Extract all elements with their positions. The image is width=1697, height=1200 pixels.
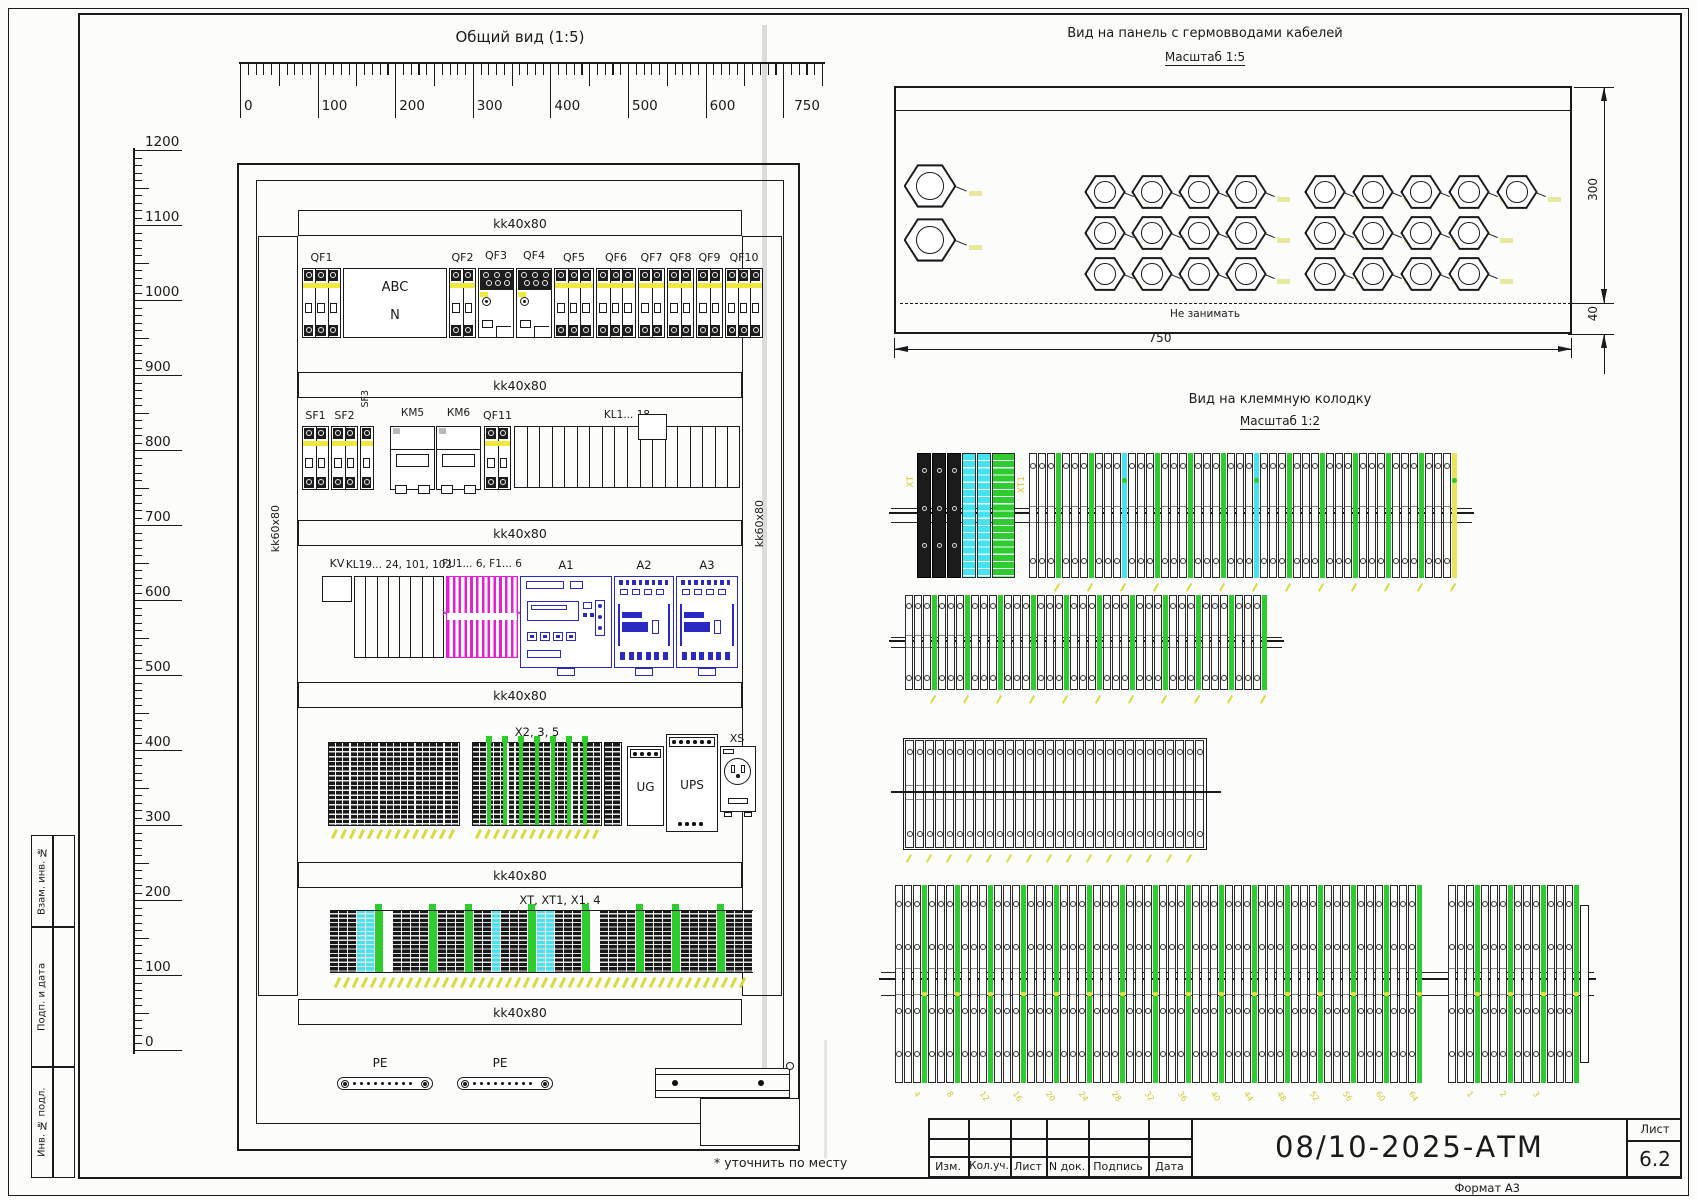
cell-line: [990, 635, 996, 636]
v-ruler-tick: [133, 480, 142, 481]
terminal-screw: [1254, 603, 1260, 609]
contactor-step: [534, 326, 549, 327]
gland-size-tag: [969, 245, 982, 250]
cell-line: [1147, 506, 1153, 507]
terminal-screw: [1277, 901, 1283, 907]
cell-line: [1236, 635, 1242, 636]
breaker-window: [317, 303, 324, 313]
terminal-cell: [416, 743, 422, 825]
terminal-screw: [1057, 831, 1063, 837]
cell-line: [1393, 522, 1399, 523]
terminal-screw: [907, 831, 913, 837]
cell-line: [1037, 994, 1043, 995]
v-ruler-tick: [133, 863, 149, 864]
cell-line: [1006, 785, 1013, 786]
v-ruler-tick: [133, 413, 149, 414]
cluster-separator: [1054, 885, 1059, 1083]
v-ruler-tick: [133, 593, 142, 594]
cell-line: [1094, 968, 1100, 969]
terminal-screw: [1202, 901, 1208, 907]
terminal-screw: [1023, 603, 1029, 609]
h-ruler-tick: [488, 62, 489, 75]
module-terminal-dot: [663, 652, 668, 660]
v-ruler-number: 0: [145, 1034, 189, 1051]
terminal-screw: [1235, 901, 1241, 907]
h-ruler-tick: [287, 62, 288, 75]
h-ruler-tick: [698, 62, 699, 75]
ug-terminal-dot: [640, 752, 644, 756]
screw-dot: [505, 272, 511, 278]
h-ruler-tick: [558, 62, 559, 75]
terminal-screw: [962, 901, 968, 907]
terminal-separator-green: [535, 743, 539, 825]
cell-line: [1038, 635, 1044, 636]
cell-line: [1155, 635, 1161, 636]
terminal-screw: [1435, 463, 1441, 469]
module-terminal-dot: [632, 580, 636, 585]
relay-window: [396, 454, 429, 467]
h-ruler-tick: [752, 62, 753, 75]
cell-line: [1103, 968, 1109, 969]
terminal-separator-green: [487, 743, 491, 825]
cell-line: [1292, 968, 1298, 969]
cell-line: [1096, 799, 1103, 800]
terminal-screw: [990, 603, 996, 609]
cell-line: [1138, 522, 1144, 523]
cluster-separator: [1262, 595, 1267, 690]
plc-bottom-bar: [527, 650, 561, 658]
fuse-mid-band: [447, 613, 517, 620]
v-ruler-tick: [133, 893, 142, 894]
terminal-screw: [1160, 901, 1166, 907]
separator-dot-green: [922, 925, 927, 930]
terminal-cell: [423, 743, 429, 825]
cell-line: [1178, 968, 1184, 969]
breaker-window: [683, 303, 691, 313]
terminal-screw: [1103, 1008, 1109, 1014]
cluster-separator: [1153, 885, 1158, 1083]
cell-line: [1279, 522, 1285, 523]
cell-line: [972, 647, 978, 648]
terminal-screw: [1067, 749, 1073, 755]
module-bracket: [732, 604, 734, 646]
cell-line: [1004, 994, 1010, 995]
v-ruler-tick: [133, 968, 142, 969]
cell-line: [1136, 785, 1143, 786]
h-ruler-number: 600: [710, 98, 750, 115]
separator-dot-green: [1353, 478, 1358, 483]
terminal-screw: [1204, 463, 1210, 469]
cluster-separator: [998, 595, 1003, 690]
terminal-screw: [1157, 831, 1163, 837]
cell-line: [947, 968, 953, 969]
terminal-screw: [1147, 831, 1153, 837]
separator-dot-yellow: [1186, 992, 1191, 997]
h-ruler-tick: [473, 62, 474, 118]
terminal-screw: [967, 831, 973, 837]
cell-line: [1106, 785, 1113, 786]
cell-line: [1235, 994, 1241, 995]
separator-dot-green: [932, 614, 937, 619]
terminal-screw: [1334, 901, 1340, 907]
cell-line: [1166, 799, 1173, 800]
v-ruler-tick: [133, 218, 142, 219]
module-terminal-dot: [699, 652, 704, 660]
cell-line: [990, 647, 996, 648]
comb-slot-divider: [677, 427, 678, 487]
v-ruler-tick: [133, 585, 142, 586]
separator-dot-green: [1541, 925, 1546, 930]
cell-line: [905, 968, 911, 969]
cell-line: [1186, 799, 1193, 800]
cell-line: [1079, 968, 1085, 969]
cell-line: [1070, 994, 1076, 995]
terminal-screw: [995, 1008, 1001, 1014]
cell-line: [1138, 506, 1144, 507]
ups-terminal-dot: [672, 740, 676, 744]
terminal-screw: [1409, 901, 1415, 907]
screw-dot: [600, 272, 606, 278]
plc-led: [590, 613, 594, 617]
comb-slot-divider: [690, 427, 691, 487]
cell-line: [1047, 635, 1053, 636]
cell-line: [1491, 968, 1497, 969]
terminal-screw: [1117, 831, 1123, 837]
terminal-screw: [1023, 675, 1029, 681]
terminal-screw: [938, 1008, 944, 1014]
plc-led: [583, 613, 587, 617]
cell-line: [1212, 635, 1218, 636]
h-ruler-tick: [721, 62, 722, 75]
ups-terminal-dot: [678, 822, 682, 826]
comb-slot-divider: [577, 427, 578, 487]
terminal-screw: [1178, 901, 1184, 907]
stamp-label-inv: Инв. № подл.: [34, 1068, 50, 1177]
cell-line: [905, 994, 911, 995]
cell-line: [1096, 506, 1102, 507]
cell-line: [1491, 994, 1497, 995]
terminal-screw: [1014, 603, 1020, 609]
pe-bus-hole: [515, 1082, 518, 1085]
plc-top-bar: [526, 581, 564, 589]
ext-line: [1568, 334, 1614, 335]
separator-dot-green: [1252, 925, 1257, 930]
v-ruler-tick: [133, 735, 142, 736]
cell-line: [1056, 785, 1063, 786]
v-ruler-tick: [133, 818, 142, 819]
cell-line: [1036, 799, 1043, 800]
cluster-separator: [1120, 885, 1125, 1083]
breaker-window: [570, 303, 578, 313]
socket-face: [724, 758, 751, 785]
plc-aux-cell: [583, 602, 592, 609]
terminal-screw: [896, 1008, 902, 1014]
terminal-screw: [1548, 901, 1554, 907]
gland-size-tag: [1277, 279, 1290, 284]
neutral-distribution-box: [343, 268, 447, 338]
separator-dot-yellow: [1318, 992, 1323, 997]
cell-line: [1343, 968, 1349, 969]
pe-bus-hole: [529, 1082, 532, 1085]
dim-300-label: 300: [1586, 178, 1600, 201]
terminal-screw: [1146, 603, 1152, 609]
v-ruler-tick: [133, 645, 142, 646]
v-ruler-tick: [133, 248, 142, 249]
terminal-screw: [929, 1008, 935, 1014]
breaker-window: [612, 303, 620, 313]
separator-dot-green: [988, 925, 993, 930]
terminal-screw: [1087, 831, 1093, 837]
v-ruler-tick: [133, 743, 142, 744]
separator-dot-green: [1417, 925, 1422, 930]
terminal-screw: [1079, 1008, 1085, 1014]
terminal-screw: [1261, 463, 1267, 469]
cell-line: [1268, 968, 1274, 969]
terminal-screw: [1037, 831, 1043, 837]
cell-line: [956, 785, 963, 786]
cell-line: [1367, 994, 1373, 995]
cell-line: [1334, 994, 1340, 995]
terminal-screw: [1360, 558, 1366, 564]
component-label: SF3: [360, 390, 371, 408]
terminal-screw: [1254, 675, 1260, 681]
cluster-separator: [1541, 885, 1546, 1083]
tb-col-list: Лист: [1010, 1160, 1046, 1173]
cell-line: [971, 968, 977, 969]
terminal-screw: [1080, 603, 1086, 609]
terminal-screw: [1268, 901, 1274, 907]
cell-line: [1458, 968, 1464, 969]
breaker-window: [582, 303, 590, 313]
plc-connector-pin: [598, 626, 602, 630]
terminal-cell-g: [672, 910, 680, 972]
terminal-screw: [1107, 831, 1113, 837]
cell-line: [1409, 994, 1415, 995]
h-ruler-tick: [737, 62, 738, 75]
terminal-screw: [914, 901, 920, 907]
stamp-box-vzam: Взам. инв. №: [31, 835, 75, 927]
cluster-separator: [1155, 453, 1160, 578]
cluster-separator: [1087, 885, 1092, 1083]
cable-gland-bore: [916, 226, 944, 254]
h-ruler-tick: [450, 62, 451, 75]
terminal-screw: [1167, 831, 1173, 837]
terminal-screw: [1129, 463, 1135, 469]
dim-arrow: [1601, 87, 1607, 101]
terminal-screw: [906, 603, 912, 609]
separator-dot-yellow: [1285, 992, 1290, 997]
terminal-screw: [1228, 558, 1234, 564]
cell-line: [1195, 506, 1201, 507]
tb-col-koluch: Кол.уч.: [966, 1160, 1012, 1172]
terminal-screw: [1345, 463, 1351, 469]
v-ruler-tick: [133, 668, 142, 669]
pe-screw-center: [343, 1082, 347, 1086]
battery-box-gb: [700, 1098, 800, 1146]
h-ruler-tick: [822, 62, 823, 86]
separator-dot-green: [1064, 614, 1069, 619]
terminal-cell: [351, 743, 357, 825]
screw-dot: [306, 327, 312, 333]
ug-label: UG: [627, 780, 664, 795]
terminal-screw: [1039, 463, 1045, 469]
terminal-screw: [1007, 749, 1013, 755]
pe-bus-hole: [360, 1082, 363, 1085]
v-ruler-tick: [133, 1013, 149, 1014]
v-ruler-tick: [133, 930, 142, 931]
general-view-title: Общий вид (1:5): [360, 28, 680, 46]
terminal-screw: [981, 603, 987, 609]
terminal-screw: [917, 749, 923, 755]
cable-gland-bore: [1410, 222, 1432, 244]
breaker-window: [599, 303, 607, 313]
module-terminal-dot: [629, 652, 634, 660]
terminal-screw: [1187, 749, 1193, 755]
socket-cell: [723, 749, 734, 754]
stamp-divider: [52, 836, 54, 926]
module-cell: [682, 589, 690, 595]
comb-slot-divider: [527, 427, 528, 487]
terminal-screw: [1113, 603, 1119, 609]
v-ruler-number: 100: [145, 959, 189, 976]
terminal-screw: [1212, 675, 1218, 681]
terminal-screw: [1017, 749, 1023, 755]
terminal-screw: [1180, 558, 1186, 564]
cell-line: [1524, 968, 1530, 969]
terminal-screw: [1327, 463, 1333, 469]
terminal-screw: [1104, 603, 1110, 609]
terminal-screw: [1114, 463, 1120, 469]
h-ruler-tick: [628, 62, 629, 118]
relay-clip: [439, 428, 446, 434]
cell-line: [1056, 799, 1063, 800]
terminal-screw: [1566, 1008, 1572, 1014]
gland-size-tag: [969, 191, 982, 196]
frame-right-line: [1680, 13, 1682, 1178]
terminal-cell: [336, 743, 342, 825]
terminal-screw: [1482, 901, 1488, 907]
terminal-screw: [1259, 1008, 1265, 1014]
v-ruler-tick: [133, 698, 142, 699]
terminal-screw-dot: [952, 543, 957, 548]
cell-line: [1076, 799, 1083, 800]
cell-line: [1435, 506, 1441, 507]
cell-line: [1270, 522, 1276, 523]
cluster-separator: [1351, 885, 1356, 1083]
cell-line: [1411, 522, 1417, 523]
terminal-screw: [1014, 675, 1020, 681]
ups-terminal-dot: [692, 822, 696, 826]
gland-view-title: Вид на панель с гермовводами кабелей: [1030, 26, 1380, 41]
cell-line: [1524, 994, 1530, 995]
v-ruler-tick: [133, 960, 142, 961]
terminal-cell: [613, 743, 620, 825]
terminal-screw: [1376, 901, 1382, 907]
relay-tab: [441, 485, 453, 494]
terminal-separator-green: [519, 743, 523, 825]
cell-line: [1039, 522, 1045, 523]
component-label: QF10: [709, 251, 779, 265]
terminal-cell-k: [420, 910, 428, 972]
terminal-screw: [1037, 749, 1043, 755]
terminal-screw: [1557, 1008, 1563, 1014]
h-ruler-tick: [395, 62, 396, 118]
cell-line: [1106, 799, 1113, 800]
socket-earth-pin: [736, 774, 740, 778]
cell-line: [1301, 968, 1307, 969]
v-ruler-tick: [133, 263, 149, 264]
v-ruler-tick: [133, 660, 142, 661]
cell-line: [1136, 799, 1143, 800]
v-ruler-tick: [133, 878, 142, 879]
terminal-screw: [937, 749, 943, 755]
terminal-screw: [1127, 831, 1133, 837]
terminal-screw: [1188, 603, 1194, 609]
separator-dot-yellow: [1351, 992, 1356, 997]
cell-line: [1166, 785, 1173, 786]
module-terminal-dot: [714, 580, 718, 585]
v-ruler-tick: [133, 398, 142, 399]
cell-line: [1023, 635, 1029, 636]
terminal-screw: [1137, 749, 1143, 755]
breaker-window: [347, 458, 355, 468]
terminal-screw: [1426, 558, 1432, 564]
cell-line: [1061, 968, 1067, 969]
cell-line: [1169, 994, 1175, 995]
module-terminal-dot: [619, 580, 623, 585]
terminal-separator-green: [567, 743, 571, 825]
h-ruler-tick: [550, 62, 551, 118]
cluster-separator: [1508, 885, 1513, 1083]
module-terminal-dot: [720, 580, 724, 585]
cell-line: [1116, 799, 1123, 800]
terminal-screw: [1312, 558, 1318, 564]
screw-dot: [521, 272, 527, 278]
h-ruler-tick: [411, 62, 412, 75]
terminal-screw: [1038, 603, 1044, 609]
marker-strip: [303, 283, 340, 288]
cluster-separator: [1353, 453, 1358, 578]
v-ruler-tick: [133, 278, 142, 279]
h-ruler-number: 750: [786, 98, 820, 115]
terminal-screw: [1566, 901, 1572, 907]
v-ruler-tick: [133, 833, 142, 834]
h-ruler-number: 0: [244, 98, 284, 115]
v-ruler-tick: [133, 533, 142, 534]
cell-line: [1129, 522, 1135, 523]
v-ruler-tick: [133, 870, 142, 871]
cell-line: [1178, 994, 1184, 995]
h-ruler-tick: [504, 62, 505, 75]
terminal-screw: [1030, 463, 1036, 469]
terminal-screw: [980, 901, 986, 907]
pe-bus-hole: [473, 1082, 476, 1085]
stamp-divider: [52, 1068, 54, 1177]
terminal-cell: [494, 743, 500, 825]
cell-line: [1235, 968, 1241, 969]
terminal-cell-colored: [977, 453, 991, 578]
cluster-separator: [1452, 453, 1457, 578]
cell-line: [1126, 799, 1133, 800]
dim-arrow: [894, 346, 908, 352]
module-terminal-dot: [637, 652, 642, 660]
cable-gland-bore: [1094, 222, 1116, 244]
breaker-window: [728, 303, 735, 313]
terminal-screw: [1004, 901, 1010, 907]
cell-line: [1188, 647, 1194, 648]
v-ruler-tick: [133, 638, 149, 639]
screw-dot: [364, 430, 370, 436]
